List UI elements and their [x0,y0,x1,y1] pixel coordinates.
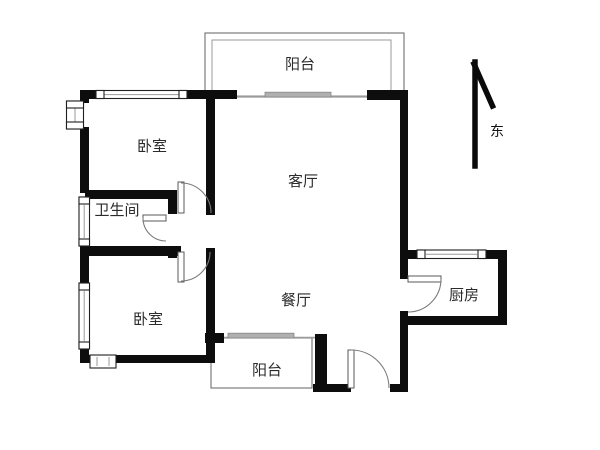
walls [80,90,507,392]
window-kitchen [417,250,486,259]
room-label-bathroom: 卫生间 [94,202,139,219]
room-label-living: 客厅 [288,173,318,190]
floor-plan-canvas: 阳台 卧室 客厅 卫生间 餐厅 卧室 阳台 厨房 东 [0,0,600,450]
room-label-bedroom-bottom: 卧室 [133,311,163,328]
room-label-dining: 餐厅 [281,292,311,309]
window-bathroom [79,197,90,246]
sliding-door-dining-balcony [224,333,315,338]
room-label-balcony-bottom: 阳台 [252,362,282,379]
sliding-door-living-balcony [237,92,367,97]
door-kitchen [408,276,441,312]
window-bedroom-top-side [67,101,84,129]
door-bathroom [143,215,166,241]
window-bedroom-bottom-small [90,355,116,368]
compass-arrow-icon [474,62,493,166]
floor-plan-drawing: 阳台 卧室 客厅 卫生间 餐厅 卧室 阳台 厨房 东 [0,0,600,450]
window-bedroom-bottom-side [79,283,90,349]
compass-label: 东 [490,124,504,140]
door-bedroom-bottom [178,252,210,282]
room-label-bedroom-top: 卧室 [137,138,167,155]
window-bedroom-top [96,91,187,99]
room-label-kitchen: 厨房 [449,287,479,304]
door-entry [348,350,389,388]
room-label-balcony-top: 阳台 [285,56,315,73]
